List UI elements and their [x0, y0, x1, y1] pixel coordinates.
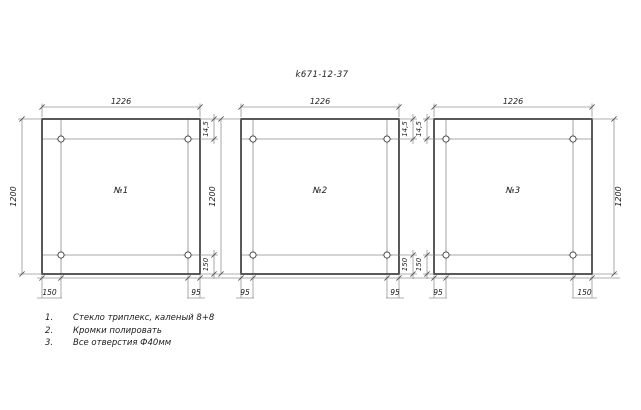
bottom-dim-label: 95 — [433, 288, 443, 297]
hole-circle — [443, 136, 449, 142]
note-number: 2. — [45, 326, 73, 336]
note-row: 2. Кромки полировать — [45, 325, 214, 338]
inset-bottom-label: 150 — [401, 257, 409, 271]
panel-1: №11226120014,515015095 — [9, 97, 218, 298]
note-number: 3. — [45, 338, 73, 348]
hole-circle — [185, 252, 191, 258]
note-text: Кромки полировать — [73, 326, 162, 336]
panel-outline — [434, 119, 592, 274]
note-number: 1. — [45, 313, 73, 323]
width-dim-label: 1226 — [503, 97, 523, 106]
panel-label: №3 — [505, 186, 520, 196]
inset-top-label: 14,5 — [202, 121, 210, 137]
hole-marker — [382, 134, 392, 144]
note-text: Стекло триплекс, каленый 8+8 — [73, 313, 214, 323]
height-dim-label: 1200 — [208, 186, 217, 206]
panel-3: №31226120014,515095150 — [415, 97, 623, 298]
bottom-dim-label: 150 — [42, 288, 57, 297]
note-row: 1. Стекло триплекс, каленый 8+8 — [45, 312, 214, 325]
hole-circle — [250, 252, 256, 258]
hole-circle — [443, 252, 449, 258]
hole-marker — [56, 250, 66, 260]
inset-bottom-label: 150 — [415, 257, 423, 271]
panel-outline — [42, 119, 200, 274]
width-dim-label: 1226 — [111, 97, 131, 106]
panel-2: №21226120014,51509595 — [208, 97, 417, 298]
hole-circle — [185, 136, 191, 142]
hole-marker — [568, 134, 578, 144]
bottom-dim-label: 150 — [577, 288, 592, 297]
hole-circle — [58, 252, 64, 258]
hole-marker — [248, 250, 258, 260]
hole-circle — [570, 136, 576, 142]
hole-circle — [250, 136, 256, 142]
panel-label: №1 — [113, 186, 128, 196]
hole-marker — [183, 134, 193, 144]
hole-marker — [441, 250, 451, 260]
hole-marker — [441, 134, 451, 144]
drawing-sheet: №11226120014,515015095№21226120014,51509… — [0, 0, 641, 410]
panel-label: №2 — [312, 186, 327, 196]
hole-marker — [382, 250, 392, 260]
note-row: 3. Все отверстия Ф40мм — [45, 337, 214, 350]
drawing-title: k671-12-37 — [296, 70, 349, 80]
hole-circle — [384, 252, 390, 258]
hole-circle — [570, 252, 576, 258]
hole-circle — [58, 136, 64, 142]
hole-circle — [384, 136, 390, 142]
panel-outline — [241, 119, 399, 274]
inset-top-label: 14,5 — [401, 121, 409, 137]
bottom-dim-label: 95 — [390, 288, 400, 297]
width-dim-label: 1226 — [310, 97, 330, 106]
inset-top-label: 14,5 — [415, 121, 423, 137]
hole-marker — [183, 250, 193, 260]
height-dim-label: 1200 — [614, 186, 623, 206]
hole-marker — [568, 250, 578, 260]
hole-marker — [248, 134, 258, 144]
height-dim-label: 1200 — [9, 186, 18, 206]
notes-list: 1. Стекло триплекс, каленый 8+8 2. Кромк… — [45, 312, 214, 350]
note-text: Все отверстия Ф40мм — [73, 338, 171, 348]
hole-marker — [56, 134, 66, 144]
bottom-dim-label: 95 — [191, 288, 201, 297]
bottom-dim-label: 95 — [240, 288, 250, 297]
inset-bottom-label: 150 — [202, 257, 210, 271]
